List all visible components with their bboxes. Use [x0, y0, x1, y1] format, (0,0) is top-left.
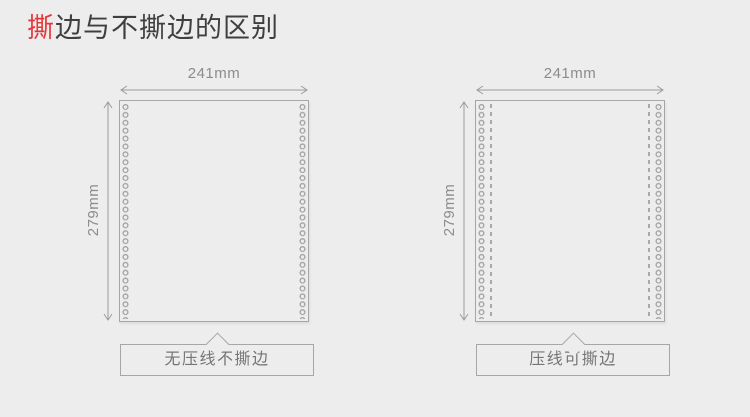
paper-sheet	[119, 100, 309, 322]
page-title: 撕边与不撕边的区别	[27, 6, 279, 45]
vertical-dimension-arrow-icon	[102, 100, 114, 322]
perforation-holes-left	[477, 103, 486, 319]
page-title-rest: 边与不撕边的区别	[55, 13, 279, 43]
caption-box: 无压线不撕边	[120, 344, 314, 376]
product-detail-banner: 撕边与不撕边的区别 241mm 279mm 无压线不撕边 241mm	[0, 0, 750, 417]
width-dimension-label: 241mm	[475, 65, 665, 82]
perforation-holes-right	[298, 103, 307, 319]
vertical-dimension-arrow-icon	[458, 100, 470, 322]
tear-line-right	[648, 104, 650, 318]
width-dimension-label: 241mm	[119, 65, 309, 82]
horizontal-dimension-arrow-icon	[475, 84, 665, 96]
paper-sheet	[475, 100, 665, 322]
perforation-holes-left	[121, 103, 130, 319]
paper-diagram-tearable: 241mm 279mm 压线可撕边	[405, 60, 745, 390]
page-title-highlight: 撕	[27, 13, 55, 43]
horizontal-dimension-arrow-icon	[119, 84, 309, 96]
height-dimension-label: 279mm	[85, 180, 101, 240]
height-dimension-label: 279mm	[441, 180, 457, 240]
tear-line-left	[490, 104, 492, 318]
caption-box: 压线可撕边	[476, 344, 670, 376]
perforation-holes-right	[654, 103, 663, 319]
paper-diagram-no-tear: 241mm 279mm 无压线不撕边	[49, 60, 389, 390]
